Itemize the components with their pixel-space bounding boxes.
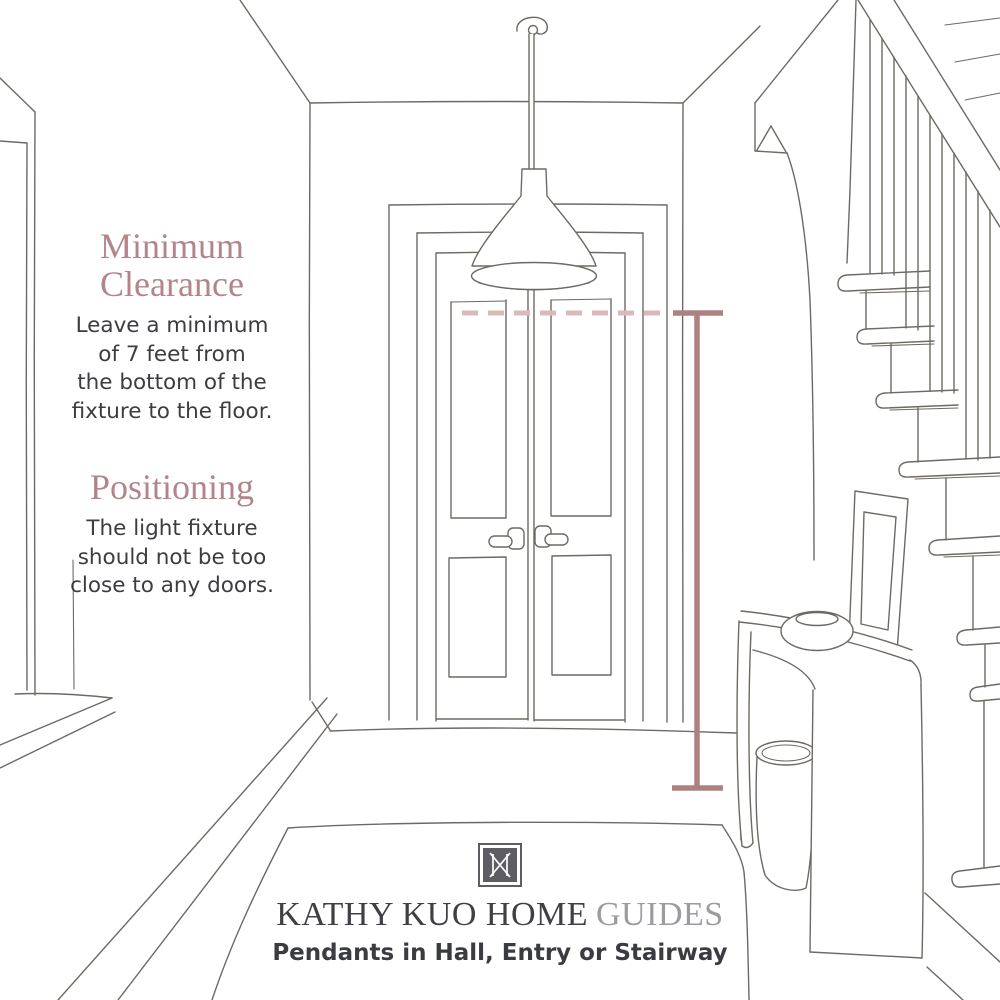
- body-line: The light fixture: [30, 515, 314, 544]
- body-line: of 7 feet from: [30, 341, 314, 370]
- footer-brand-block: KATHY KUO HOMEGUIDES Pendants in Hall, E…: [0, 843, 1000, 968]
- door-panels-drawing: [449, 299, 611, 677]
- body-line: should not be too: [30, 544, 314, 573]
- heading-line: Minimum: [30, 227, 314, 265]
- positioning-section: Positioning The light fixture should not…: [30, 468, 314, 601]
- heading-line: Clearance: [30, 265, 314, 303]
- stair-balusters-drawing: [870, 20, 990, 460]
- picture-frame-drawing: [849, 491, 908, 652]
- body-line: the bottom of the: [30, 369, 314, 398]
- guide-subtitle: Pendants in Hall, Entry or Stairway: [0, 938, 1000, 968]
- minimum-clearance-section: Minimum Clearance Leave a minimum of 7 f…: [30, 227, 314, 426]
- minimum-clearance-body: Leave a minimum of 7 feet from the botto…: [30, 312, 314, 426]
- brand-name: KATHY KUO HOME: [276, 896, 588, 933]
- positioning-heading: Positioning: [30, 468, 314, 506]
- decorative-bowl-drawing: [781, 612, 853, 651]
- minimum-clearance-heading: Minimum Clearance: [30, 227, 314, 303]
- positioning-body: The light fixture should not be too clos…: [30, 515, 314, 601]
- infographic-canvas: Minimum Clearance Leave a minimum of 7 f…: [0, 0, 1000, 1000]
- body-line: fixture to the floor.: [30, 398, 314, 427]
- pendant-light-drawing: [472, 17, 597, 290]
- clearance-measurement: [462, 313, 723, 788]
- guides-label: GUIDES: [596, 896, 724, 933]
- body-line: Leave a minimum: [30, 312, 314, 341]
- kk-monogram-icon: [478, 843, 522, 887]
- heading-line: Positioning: [30, 468, 314, 506]
- brand-title: KATHY KUO HOMEGUIDES: [0, 896, 1000, 934]
- body-line: close to any doors.: [30, 572, 314, 601]
